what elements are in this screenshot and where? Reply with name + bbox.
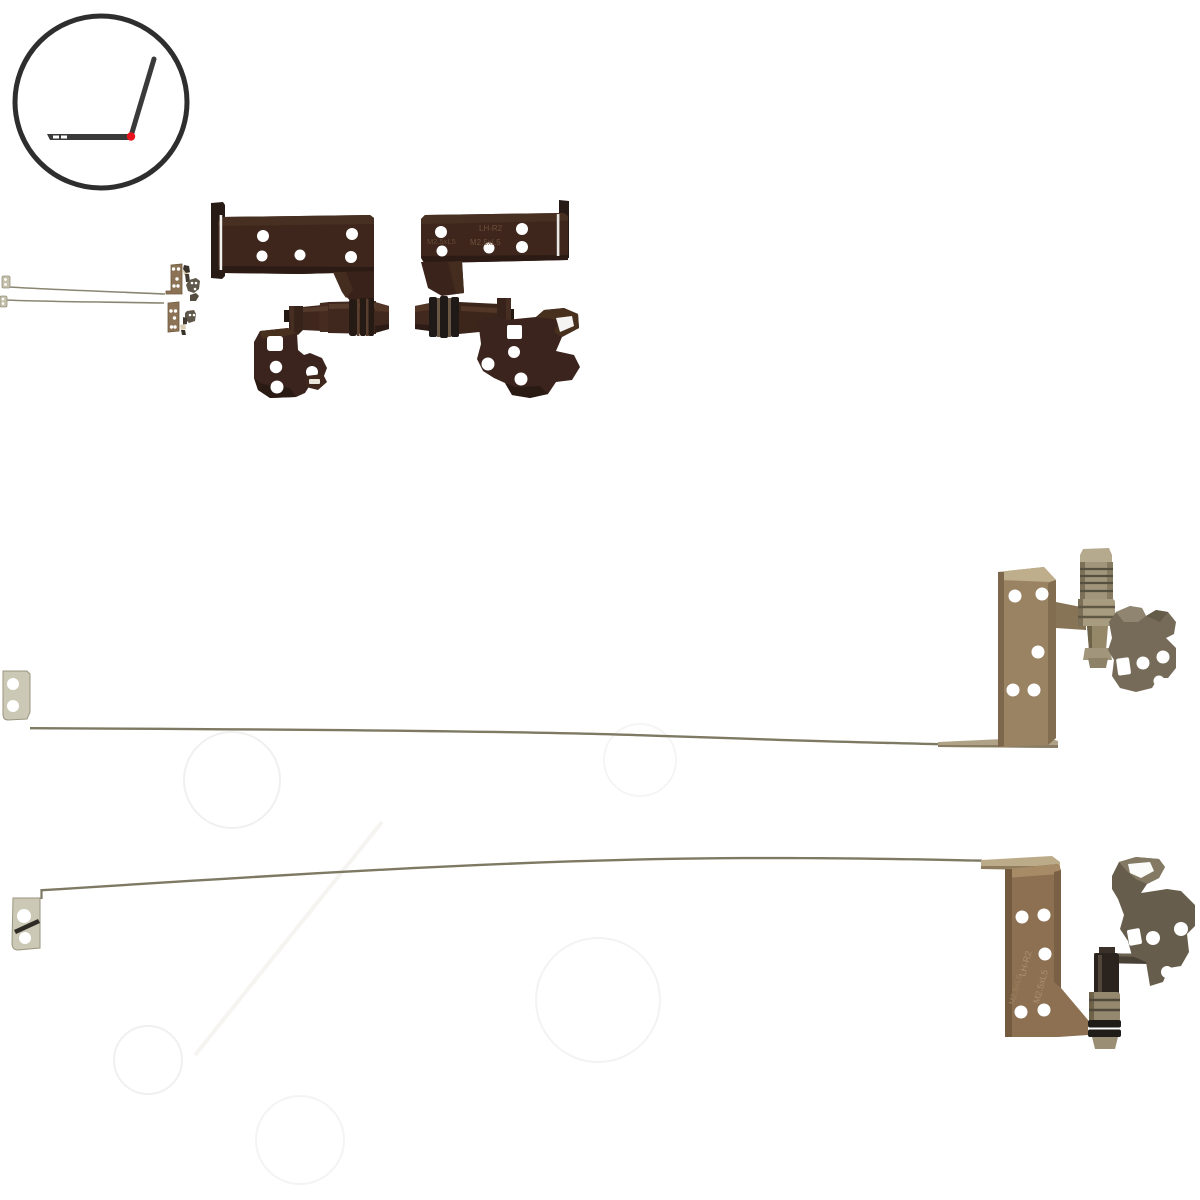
svg-text:LH-R2: LH-R2 <box>479 224 503 233</box>
svg-text:M2.5xL5: M2.5xL5 <box>470 238 501 247</box>
svg-text:M2.5xL5: M2.5xL5 <box>427 237 456 246</box>
